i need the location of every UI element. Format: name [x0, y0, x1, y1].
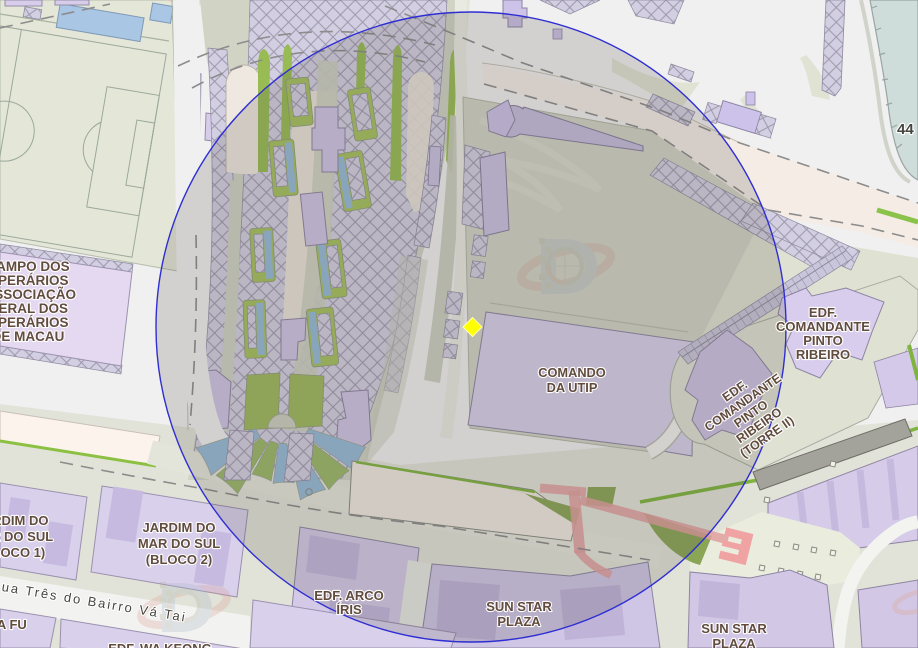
svg-text:GERAL DOS: GERAL DOS	[0, 301, 68, 316]
svg-text:SUN STAR: SUN STAR	[486, 599, 552, 614]
svg-text:JARDIM DO: JARDIM DO	[0, 513, 48, 528]
svg-text:44: 44	[897, 121, 914, 138]
svg-text:PINTO: PINTO	[803, 333, 843, 348]
svg-text:MAR DO SUL: MAR DO SUL	[138, 536, 220, 551]
svg-text:OPERÁRIOS: OPERÁRIOS	[0, 273, 69, 288]
svg-text:CAMPO DOS: CAMPO DOS	[0, 259, 70, 274]
svg-text:(BLOCO 2): (BLOCO 2)	[146, 552, 212, 567]
svg-text:COMANDO: COMANDO	[538, 365, 606, 380]
svg-text:SUN STAR: SUN STAR	[701, 621, 767, 636]
svg-text:COMANDANTE: COMANDANTE	[776, 319, 870, 334]
svg-text:MAR DO SUL: MAR DO SUL	[0, 529, 53, 544]
svg-text:ÍRIS: ÍRIS	[336, 602, 362, 617]
svg-text:EDF. ARCO: EDF. ARCO	[314, 588, 384, 603]
svg-text:(BLOCO 1): (BLOCO 1)	[0, 545, 45, 560]
svg-text:OPERÁRIOS: OPERÁRIOS	[0, 315, 69, 330]
svg-text:JARDIM DO: JARDIM DO	[143, 520, 216, 535]
svg-text:PLAZA: PLAZA	[497, 614, 541, 629]
svg-text:DA UTIP: DA UTIP	[547, 380, 598, 395]
svg-text:RIBEIRO: RIBEIRO	[796, 347, 850, 362]
svg-text:DE MACAU: DE MACAU	[0, 329, 64, 344]
svg-text:EDF.: EDF.	[809, 305, 837, 320]
svg-text:PLAZA: PLAZA	[712, 636, 756, 648]
svg-text:VA FU: VA FU	[0, 617, 27, 632]
svg-text:(ASSOCIAÇÃO: (ASSOCIAÇÃO	[0, 287, 76, 302]
svg-text:EDF. WA KEONG: EDF. WA KEONG	[108, 641, 212, 648]
